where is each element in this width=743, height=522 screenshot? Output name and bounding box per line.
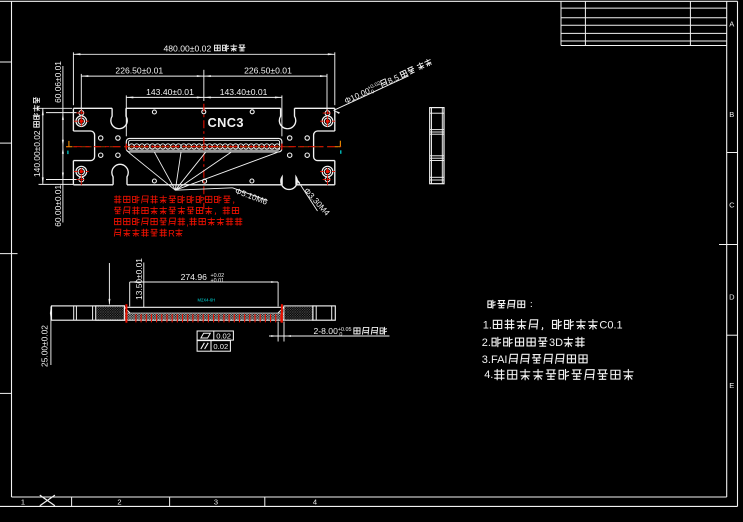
svg-text:274.96: 274.96 xyxy=(181,272,208,282)
svg-text:143.40±0.01: 143.40±0.01 xyxy=(220,87,268,97)
svg-text:1.: 1. xyxy=(483,319,492,331)
svg-text:CNC3: CNC3 xyxy=(208,115,244,130)
svg-text:25.00±0.02: 25.00±0.02 xyxy=(40,325,50,367)
svg-text:2: 2 xyxy=(117,497,121,506)
svg-text:60.00±0.01: 60.00±0.01 xyxy=(53,185,63,227)
svg-text:60.06±0.01: 60.06±0.01 xyxy=(53,61,63,103)
svg-text:R: R xyxy=(168,229,175,239)
svg-text:E: E xyxy=(729,381,734,390)
svg-text:226.50±0.01: 226.50±0.01 xyxy=(115,66,163,76)
svg-text:3.FAI: 3.FAI xyxy=(482,354,508,366)
svg-text:3: 3 xyxy=(214,497,218,506)
svg-text:B: B xyxy=(729,110,734,119)
svg-text:4: 4 xyxy=(313,497,317,506)
svg-text:4.: 4. xyxy=(484,369,493,381)
svg-text:A: A xyxy=(729,19,734,28)
svg-text:3D: 3D xyxy=(549,337,563,349)
svg-text:+0.01: +0.01 xyxy=(211,278,225,284)
svg-text:0: 0 xyxy=(338,332,343,338)
svg-text:13.50±0.01: 13.50±0.01 xyxy=(134,258,144,300)
svg-text:480.00±0.02: 480.00±0.02 xyxy=(164,44,212,54)
svg-text:143.40±0.01: 143.40±0.01 xyxy=(146,87,194,97)
svg-text:0.02: 0.02 xyxy=(216,331,231,340)
svg-text:C: C xyxy=(729,200,735,209)
svg-text:,: , xyxy=(186,217,189,227)
svg-text:140.00±0.02: 140.00±0.02 xyxy=(32,130,42,177)
svg-text:1: 1 xyxy=(21,497,25,506)
svg-text:0.02: 0.02 xyxy=(213,342,228,351)
svg-text:C0.1: C0.1 xyxy=(599,319,622,331)
svg-text:D: D xyxy=(729,292,735,301)
svg-text:2.: 2. xyxy=(482,337,491,349)
svg-text:2-8.00: 2-8.00 xyxy=(314,326,339,336)
svg-text:M2X4-6H: M2X4-6H xyxy=(198,297,216,302)
svg-text:226.50±0.01: 226.50±0.01 xyxy=(244,66,292,76)
